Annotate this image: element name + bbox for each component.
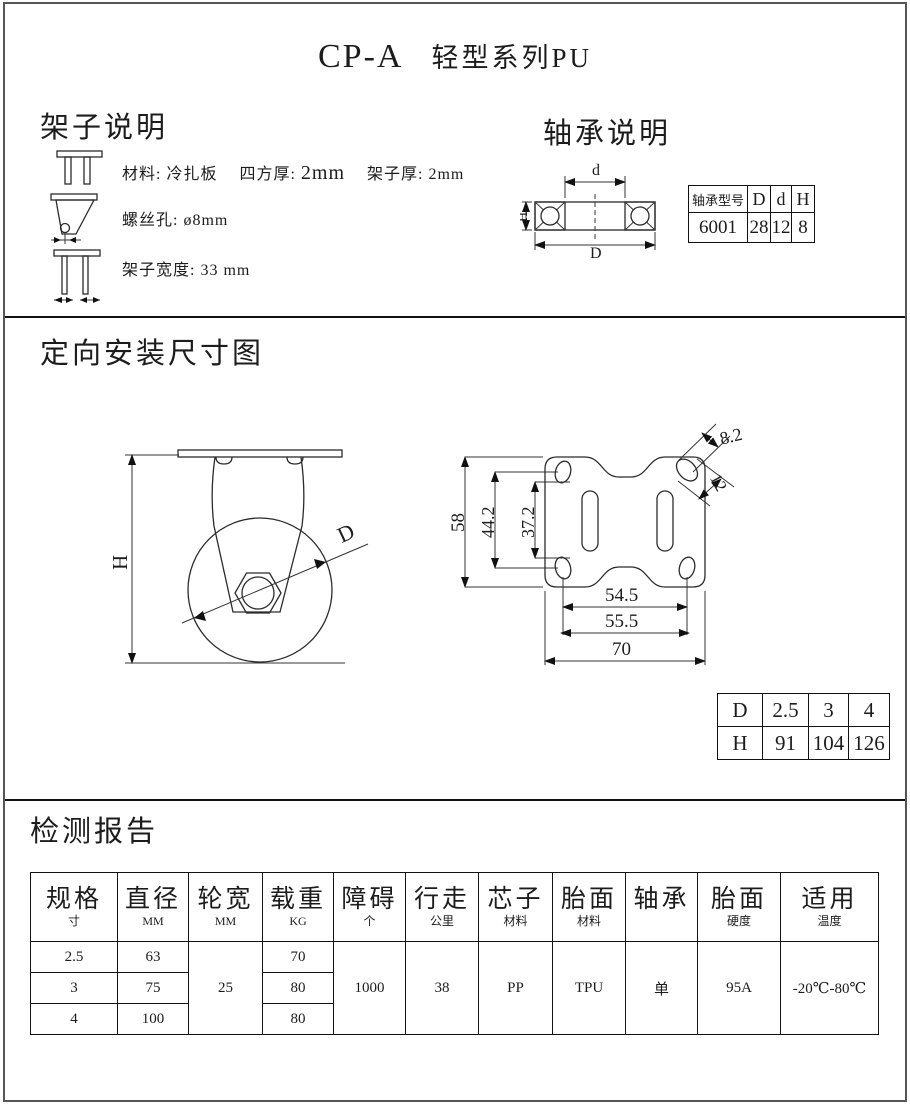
header-sub: KG	[263, 915, 333, 928]
temperature-cell: -20℃-80℃	[781, 942, 879, 1035]
header-main: 适用	[781, 886, 878, 915]
bearing-cross-section-drawing: d D H	[520, 158, 690, 260]
size-cell: 4	[31, 1004, 118, 1035]
header-tread-hardness: 胎面 硬度	[698, 873, 781, 942]
header-sub: 个	[334, 915, 405, 928]
bearing-dim-d-label: d	[592, 162, 600, 179]
plate-dim-54-label: 54.5	[605, 585, 638, 606]
material-text: 材料: 冷扎板	[122, 166, 217, 183]
obstacles-cell: 1000	[334, 942, 406, 1035]
header-sub: MM	[189, 915, 262, 928]
report-header-row: 规格 寸 直径 MM 轮宽 MM 载重 KG 障碍 个	[31, 873, 879, 942]
plate-dim-55-label: 55.5	[605, 611, 638, 632]
bearing-model-value: 6001	[689, 213, 748, 243]
section-divider-1	[5, 316, 905, 318]
bearing-spec-table: 轴承型号 D d H 6001 28 12 8	[688, 185, 815, 243]
diameter-row: D 2.5 3 4	[718, 694, 890, 727]
frame-section-heading: 架子说明	[40, 104, 168, 146]
hardness-cell: 95A	[698, 942, 781, 1035]
dh-cell: 126	[849, 727, 890, 760]
model-code: CP-A	[318, 38, 403, 75]
core-material-cell: PP	[479, 942, 553, 1035]
square-thickness-value: 2mm	[301, 162, 345, 184]
size-cell: 3	[31, 973, 118, 1004]
distance-cell: 38	[406, 942, 479, 1035]
header-main: 轮宽	[189, 886, 262, 915]
header-main: 载重	[263, 886, 333, 915]
mounting-section-heading: 定向安装尺寸图	[40, 330, 264, 372]
header-sub: MM	[118, 915, 188, 928]
header-sub: 材料	[479, 915, 552, 928]
frame-front-view-icon	[55, 148, 105, 194]
dh-cell: 4	[849, 694, 890, 727]
size-cell: 2.5	[31, 942, 118, 973]
plate-dim-8-label: 8.2	[718, 424, 745, 449]
bearing-section-heading: 轴承说明	[543, 110, 671, 152]
diameter-cell: 100	[118, 1004, 189, 1035]
report-row-2-5: 2.5 63 25 70 1000 38 PP TPU 单 95A -20℃-8…	[31, 942, 879, 973]
size-height-table: D 2.5 3 4 H 91 104 126	[717, 693, 890, 760]
diameter-cell: 75	[118, 973, 189, 1004]
caster-side-view-drawing: H D	[95, 430, 385, 678]
plate-dim-44-label: 44.2	[478, 507, 498, 539]
frame-width-label: 架子宽度: 33 mm	[122, 256, 250, 280]
header-distance: 行走 公里	[406, 873, 479, 942]
section-divider-2	[5, 799, 905, 801]
header-wheel-width: 轮宽 MM	[189, 873, 263, 942]
frame-material-label: 材料: 冷扎板四方厚: 2mm架子厚: 2mm	[122, 160, 464, 185]
mounting-plate-top-view-drawing: 58 44.2 37.2 54.5 55.5 70 8.2 12	[450, 415, 770, 683]
bearing-H-value: 8	[792, 213, 815, 243]
header-main: 胎面	[553, 886, 625, 915]
header-sub: 寸	[31, 915, 117, 928]
bearing-model-header: 轴承型号	[689, 186, 748, 213]
header-temperature: 适用 温度	[781, 873, 879, 942]
dh-cell: 104	[809, 727, 849, 760]
plate-dim-37-label: 37.2	[518, 507, 538, 539]
bearing-dim-D-label: D	[590, 245, 602, 260]
header-sub: 公里	[406, 915, 478, 928]
header-tread-material: 胎面 材料	[553, 873, 626, 942]
header-load: 载重 KG	[263, 873, 334, 942]
side-dim-H-label: H	[108, 555, 132, 570]
dh-cell: 2.5	[763, 694, 809, 727]
header-sub: 硬度	[698, 915, 780, 928]
dh-H-header: H	[718, 727, 763, 760]
plate-dim-12-label: 12	[706, 471, 731, 495]
header-obstacle: 障碍 个	[334, 873, 406, 942]
test-report-table: 规格 寸 直径 MM 轮宽 MM 载重 KG 障碍 个	[30, 872, 879, 1035]
square-thickness-label: 四方厚:	[239, 166, 295, 183]
frame-thickness-text: 架子厚: 2mm	[367, 166, 464, 183]
report-section-heading: 检测报告	[30, 808, 158, 850]
header-main: 障碍	[334, 886, 405, 915]
dh-cell: 91	[763, 727, 809, 760]
bearing-dim-H-label: H	[520, 212, 531, 222]
bearing-d-header: d	[771, 186, 792, 213]
bearing-D-header: D	[748, 186, 771, 213]
screw-hole-icon	[48, 192, 106, 250]
header-size: 规格 寸	[31, 873, 118, 942]
header-main: 规格	[31, 886, 117, 915]
bearing-table-header-row: 轴承型号 D d H	[689, 186, 815, 213]
header-main: 行走	[406, 886, 478, 915]
series-name: 轻型系列PU	[431, 43, 592, 73]
side-dim-D-label: D	[333, 518, 358, 547]
spec-sheet-page: CP-A轻型系列PU 架子说明 材料: 冷扎板四方厚: 2mm架子厚: 2mm …	[0, 0, 910, 1113]
frame-width-icon	[52, 248, 104, 308]
header-sub	[626, 915, 697, 928]
dh-D-header: D	[718, 694, 763, 727]
header-bearing: 轴承	[626, 873, 698, 942]
diameter-cell: 63	[118, 942, 189, 973]
plate-dim-58-label: 58	[450, 513, 469, 532]
load-cell: 80	[263, 1004, 334, 1035]
header-core-material: 芯子 材料	[479, 873, 553, 942]
bearing-type-cell: 单	[626, 942, 698, 1035]
header-main: 轴承	[626, 886, 697, 915]
header-main: 芯子	[479, 886, 552, 915]
tread-material-cell: TPU	[553, 942, 626, 1035]
header-main: 胎面	[698, 886, 780, 915]
bearing-d-value: 12	[771, 213, 792, 243]
load-cell: 70	[263, 942, 334, 973]
load-cell: 80	[263, 973, 334, 1004]
page-title: CP-A轻型系列PU	[0, 36, 910, 76]
height-row: H 91 104 126	[718, 727, 890, 760]
plate-dim-70-label: 70	[612, 639, 631, 660]
header-main: 直径	[118, 886, 188, 915]
dh-cell: 3	[809, 694, 849, 727]
wheel-width-cell: 25	[189, 942, 263, 1035]
header-sub: 温度	[781, 915, 878, 928]
bearing-table-value-row: 6001 28 12 8	[689, 213, 815, 243]
bearing-H-header: H	[792, 186, 815, 213]
bearing-D-value: 28	[748, 213, 771, 243]
header-diameter: 直径 MM	[118, 873, 189, 942]
screw-hole-label: 螺丝孔: ø8mm	[122, 206, 228, 230]
header-sub: 材料	[553, 915, 625, 928]
